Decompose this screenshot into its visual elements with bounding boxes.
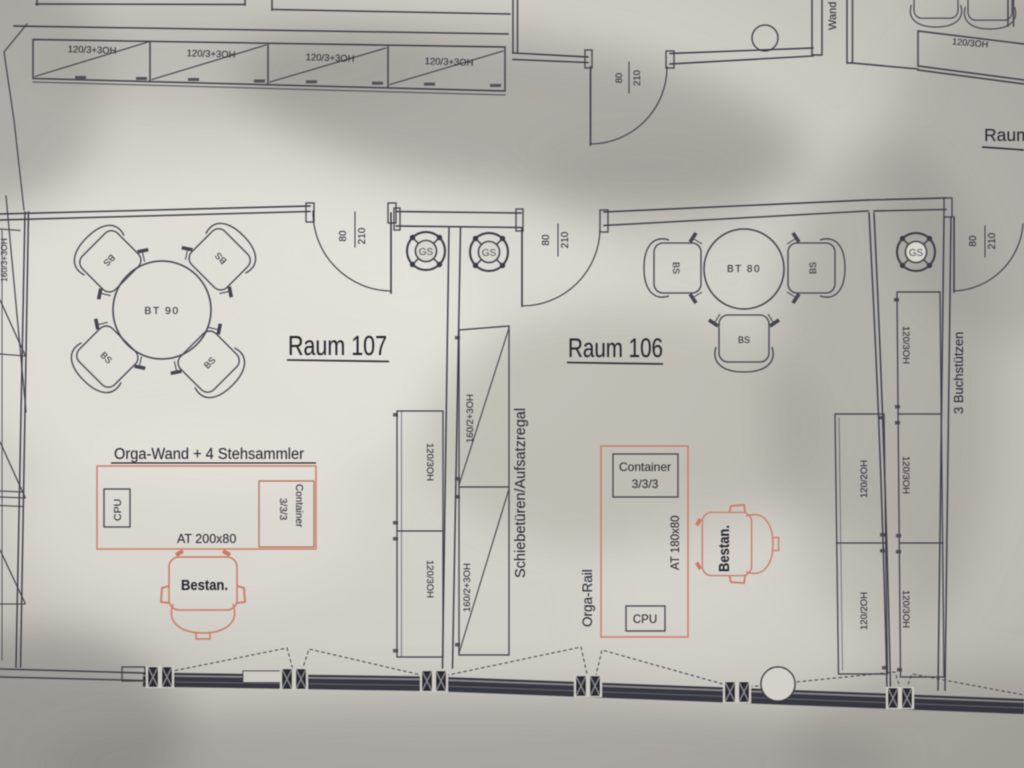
svg-text:Container: Container <box>619 460 671 474</box>
svg-text:160/3+3OH: 160/3+3OH <box>0 238 9 282</box>
svg-text:120/3+3OH: 120/3+3OH <box>305 52 354 65</box>
svg-text:CPU: CPU <box>633 614 657 626</box>
svg-text:3/3/3: 3/3/3 <box>632 477 659 491</box>
svg-text:210: 210 <box>632 70 643 86</box>
svg-text:120/3OH: 120/3OH <box>900 590 911 628</box>
svg-text:120/3+3OH: 120/3+3OH <box>424 56 473 69</box>
svg-text:80: 80 <box>614 73 625 84</box>
svg-text:CPU: CPU <box>112 499 124 521</box>
svg-text:120/3OH: 120/3OH <box>424 560 435 598</box>
svg-text:160/2+3OH: 160/2+3OH <box>465 394 476 443</box>
svg-text:80: 80 <box>338 230 349 242</box>
svg-text:Container: Container <box>293 484 304 528</box>
svg-text:Raum 106: Raum 106 <box>568 333 663 363</box>
svg-text:Bestan.: Bestan. <box>181 578 228 594</box>
svg-text:BS: BS <box>808 262 818 274</box>
svg-text:Raum: Raum <box>984 125 1024 145</box>
svg-text:BS: BS <box>671 262 681 274</box>
svg-text:80: 80 <box>541 234 552 246</box>
svg-text:BT 90: BT 90 <box>144 305 179 317</box>
svg-text:Bestan.: Bestan. <box>717 525 733 572</box>
svg-text:80: 80 <box>968 235 979 247</box>
svg-text:AT 180x80: AT 180x80 <box>670 515 682 570</box>
svg-text:210: 210 <box>357 227 368 244</box>
svg-text:210: 210 <box>560 231 571 248</box>
svg-text:120/3OH: 120/3OH <box>900 456 911 494</box>
svg-text:3 Buchstützen: 3 Buchstützen <box>951 332 966 414</box>
svg-text:Schiebetüren/Aufsatzregal: Schiebetüren/Aufsatzregal <box>513 408 529 578</box>
svg-text:Orga-Wand + 4 Stehsammler: Orga-Wand + 4 Stehsammler <box>114 446 304 463</box>
svg-text:160/2+3OH: 160/2+3OH <box>462 563 473 612</box>
svg-text:120/3OH: 120/3OH <box>900 326 911 364</box>
svg-text:120/3+3OH: 120/3+3OH <box>186 48 235 61</box>
svg-text:AT 200x80: AT 200x80 <box>177 532 236 546</box>
svg-text:BT 80: BT 80 <box>727 264 761 275</box>
svg-text:120/3+3OH: 120/3+3OH <box>67 44 116 57</box>
svg-text:120/2OH: 120/2OH <box>859 592 870 630</box>
svg-text:120/3OH: 120/3OH <box>424 443 435 481</box>
svg-text:210: 210 <box>987 232 998 249</box>
svg-text:Raum 107: Raum 107 <box>288 330 387 361</box>
svg-text:Orga-Rail: Orga-Rail <box>580 569 595 627</box>
svg-text:120/2OH: 120/2OH <box>859 460 870 498</box>
svg-text:BS: BS <box>738 335 750 345</box>
svg-text:3/3/3: 3/3/3 <box>277 498 288 521</box>
svg-text:Wand: Wand <box>827 2 839 30</box>
